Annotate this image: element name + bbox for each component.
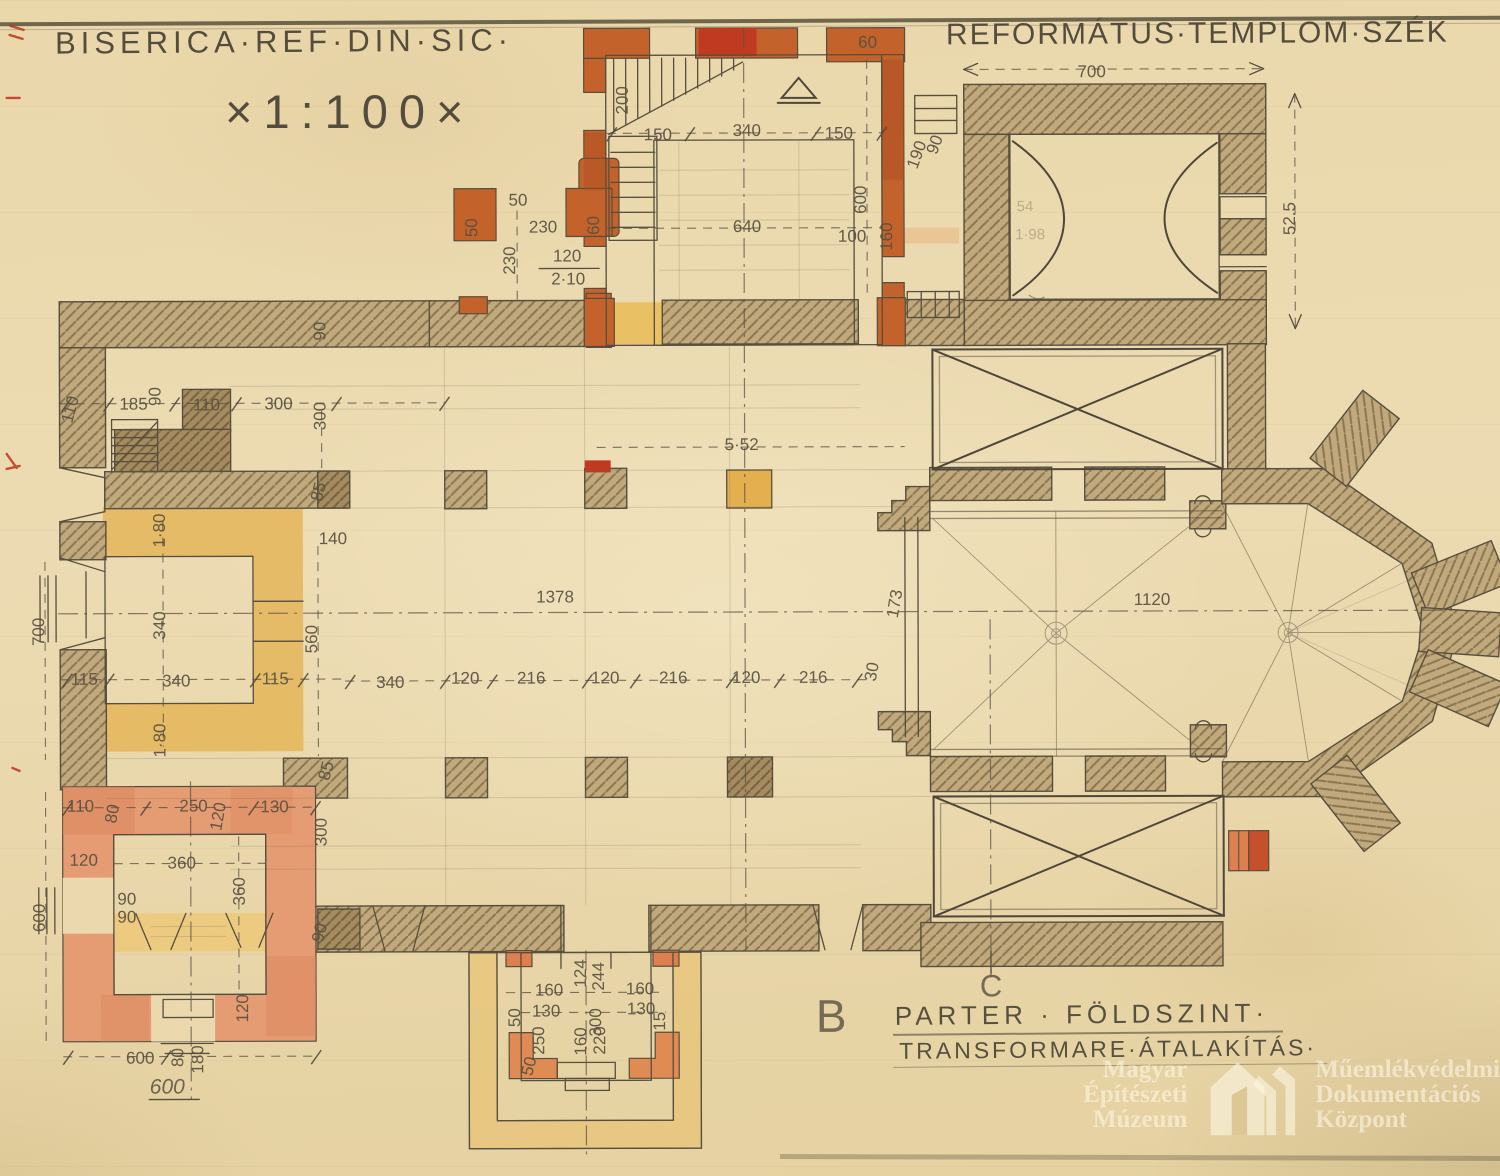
dimension-label: 140 (319, 529, 347, 548)
dimension-label: 124 (571, 959, 590, 987)
title-romanian: BISERICA·REF·DIN·SIC· (55, 22, 513, 61)
dimension-label: 90 (145, 387, 164, 406)
dimension-label: 360 (230, 877, 249, 905)
watermark-line: Dokumentációs (1315, 1082, 1500, 1107)
watermark-line: Műemlékvédelmi (1315, 1057, 1500, 1082)
dimension-label: 90 (117, 890, 136, 909)
dimension-label: 15 (650, 1012, 669, 1031)
dimension-label: 640 (733, 217, 761, 236)
dimension-label: 600 (126, 1049, 154, 1068)
dimension-label: 340 (733, 121, 761, 140)
dimension-label: 90 (310, 322, 329, 341)
dimension-label: 173 (883, 588, 907, 619)
red-archive-marks (6, 26, 26, 771)
dimension-label: 700 (1077, 62, 1105, 81)
house-door-icon (1203, 1050, 1299, 1138)
dimension-label: 5·52 (725, 435, 759, 454)
dimension-label: 120 (591, 668, 619, 687)
dimension-label: 100 (838, 227, 866, 246)
dimension-label: 300 (264, 394, 292, 413)
dimension-label: 52.5 (1280, 202, 1299, 235)
dimension-label: 220 (590, 1026, 609, 1054)
dimension-label: 600 (150, 1075, 185, 1098)
watermark-line: Magyar (1058, 1057, 1187, 1082)
dimension-label: 2·10 (551, 269, 585, 288)
dimension-label: 185 (119, 395, 147, 414)
dimension-label: 340 (162, 671, 190, 690)
dimension-label: 60 (584, 216, 603, 235)
dimension-label: 600 (30, 904, 49, 932)
watermark-line: Építészeti (1058, 1082, 1187, 1107)
dimension-label: 300 (312, 818, 331, 846)
watermark-right-text: Műemlékvédelmi Dokumentációs Központ (1315, 1057, 1500, 1132)
dimension-label: 160 (535, 980, 563, 999)
section-marker: B (816, 990, 847, 1042)
dimension-label: 200 (613, 86, 632, 114)
dimension-label: 250 (179, 796, 207, 815)
dimension-label: 1·80 (150, 724, 169, 758)
scale-label: ×1:100× (225, 84, 475, 139)
dimension-label: 560 (302, 625, 321, 653)
dimension-label: 130 (260, 797, 288, 816)
dimension-label: 360 (168, 853, 196, 872)
dimension-label: 110 (67, 797, 94, 816)
dimension-label: 300 (311, 402, 330, 430)
title-hungarian: REFORMÁTUS·TEMPLOM·SZÉK (946, 16, 1449, 53)
dimension-label: 110 (193, 395, 220, 414)
dimension-label: 160 (626, 979, 654, 998)
dimension-label: 30 (861, 661, 883, 683)
dimension-label: 1378 (536, 587, 574, 606)
dimension-label: 120 (732, 668, 760, 687)
dimension-label: 1·80 (150, 514, 169, 548)
dimension-label: 120 (451, 669, 479, 688)
dimension-label: 50 (462, 218, 481, 237)
dimension-label: 120 (553, 246, 581, 265)
dimension-label: 115 (71, 670, 98, 689)
watermark-line: Központ (1315, 1107, 1500, 1132)
dimension-label: 120 (69, 851, 97, 870)
watermark-line: Múzeum (1058, 1107, 1187, 1132)
dimension-label: 250 (529, 1026, 548, 1054)
dimension-label: 80 (101, 803, 123, 825)
watermark-left-text: Magyar Építészeti Múzeum (1058, 1057, 1187, 1132)
dimension-label: 1·98 (1015, 226, 1045, 243)
dimension-label: 340 (376, 673, 404, 692)
watermark: Magyar Építészeti Múzeum Műemlékvédelmi … (1058, 1050, 1500, 1138)
dimension-label: 90 (117, 908, 136, 927)
dimension-label: 180 (188, 1045, 207, 1073)
dimension-label: 700 (29, 618, 48, 646)
dimension-label: 160 (877, 222, 896, 250)
dimension-label: 230 (500, 246, 519, 274)
dimension-label: 216 (659, 668, 687, 687)
section-marker: C (980, 968, 1002, 1003)
dimension-label: 130 (532, 1001, 560, 1020)
dimension-label: 216 (517, 669, 545, 688)
dimension-label: 150 (825, 124, 853, 143)
dimension-label: 80 (168, 1048, 187, 1067)
dimension-label: 230 (529, 218, 557, 237)
scanned-floor-plan: 6015034015064060010016019090200505023023… (0, 0, 1500, 1176)
dimension-label: 120 (233, 994, 252, 1022)
dimension-label: 1120 (1134, 590, 1171, 609)
dimension-label: 60 (858, 33, 877, 52)
dimension-label: 600 (851, 185, 870, 213)
dimension-label: 115 (262, 669, 289, 688)
dimension-label: 160 (571, 1027, 590, 1055)
dimension-label: 54 (1017, 198, 1034, 215)
dimension-label: 340 (150, 611, 169, 639)
dimension-label: 150 (644, 125, 672, 144)
dimension-label: 216 (799, 668, 827, 687)
dimension-label: 244 (589, 962, 608, 990)
dimension-label: 50 (508, 191, 527, 210)
caption-parter-foldszint: PARTER · FÖLDSZINT· (893, 997, 1284, 1035)
dimension-label: 50 (505, 1008, 524, 1027)
